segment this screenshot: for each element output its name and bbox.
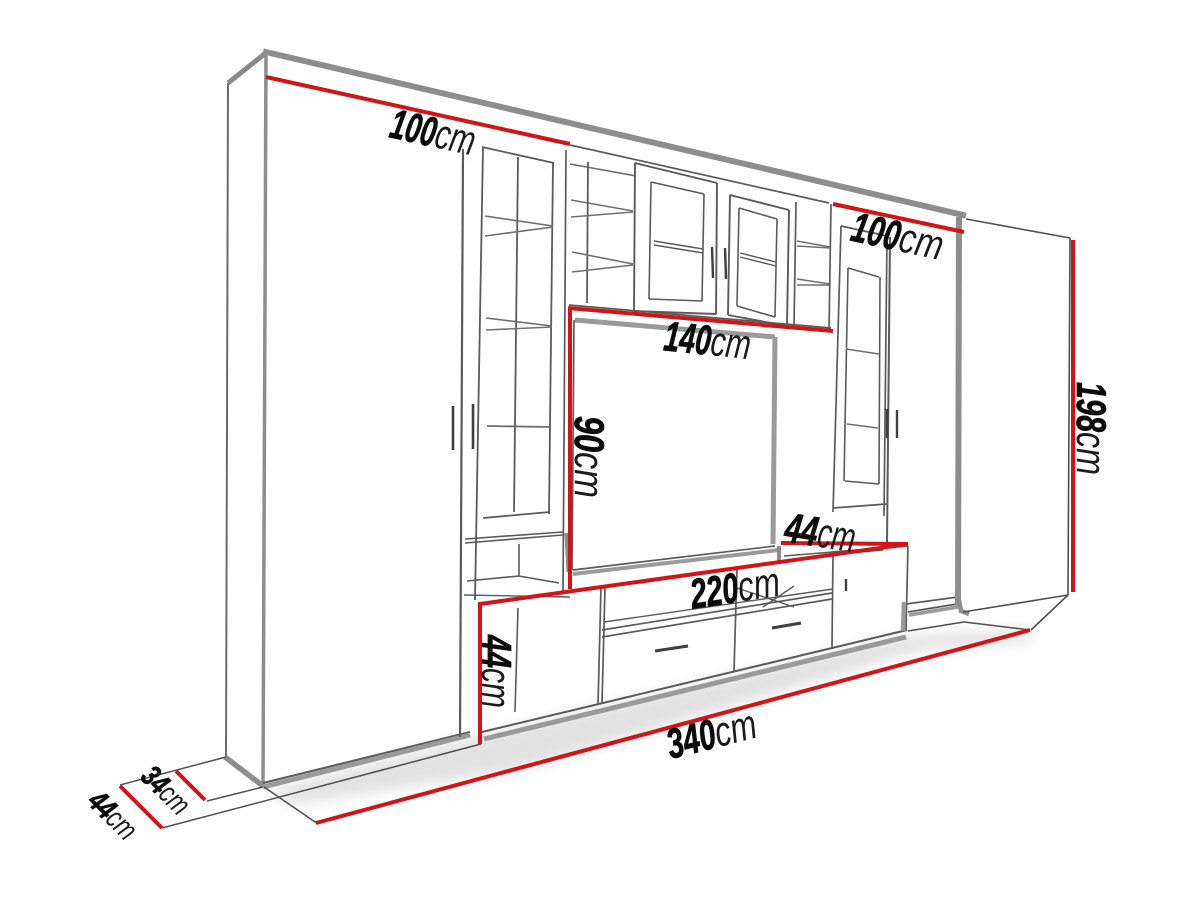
- svg-text:90cm: 90cm: [566, 416, 613, 498]
- svg-text:198cm: 198cm: [1068, 382, 1115, 475]
- svg-text:140cm: 140cm: [662, 312, 753, 368]
- svg-text:44cm: 44cm: [473, 634, 520, 708]
